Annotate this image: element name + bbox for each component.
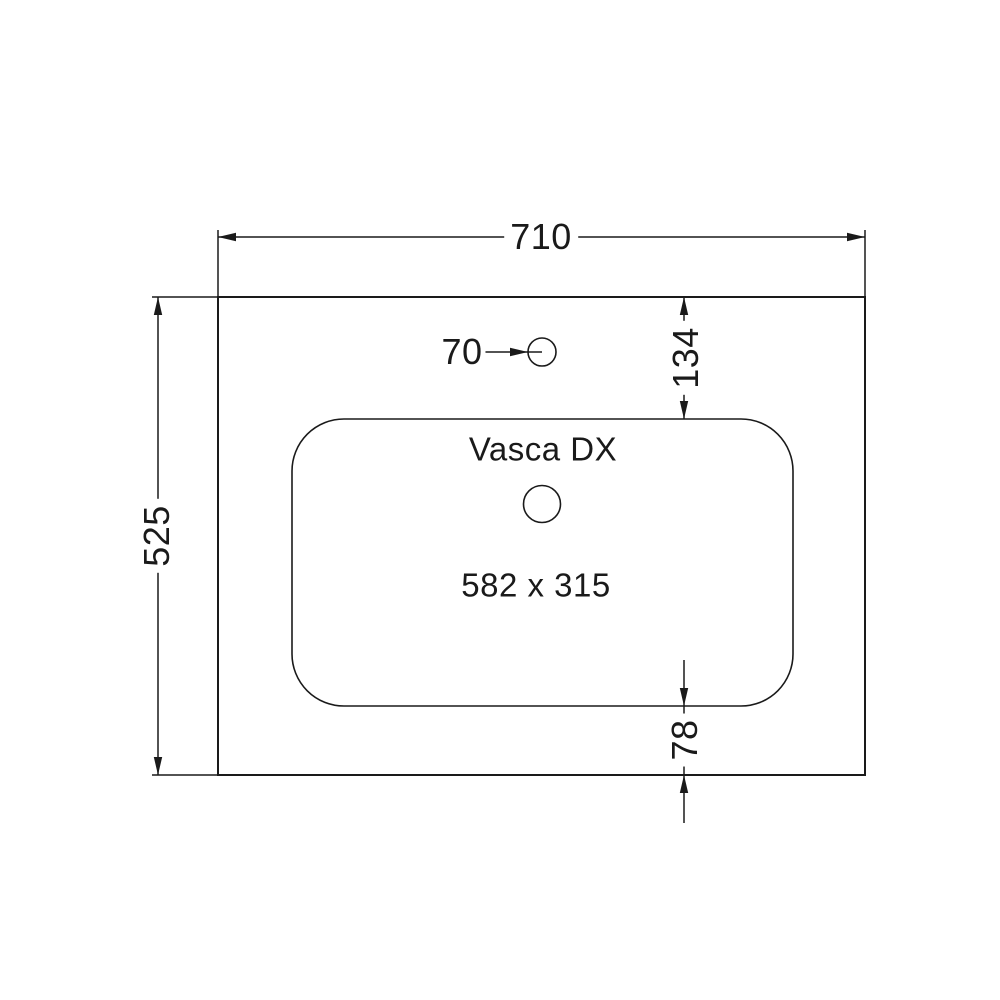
technical-drawing: 710 525 134 78 70 Vasca DX 582 x 315 <box>0 0 1000 1000</box>
basin-size-label: 582 x 315 <box>457 568 614 603</box>
dim-text-faucet-offset: 134 <box>667 321 705 395</box>
arrow-basin-offset-bottom <box>680 775 688 793</box>
arrow-depth-bottom <box>154 757 162 775</box>
countertop-outline <box>218 297 865 775</box>
dim-text-basin-offset: 78 <box>666 713 704 766</box>
drain-hole-circle <box>524 486 561 523</box>
arrow-depth-top <box>154 297 162 315</box>
arrow-faucet-leader <box>510 348 528 356</box>
dim-text-overall-depth: 525 <box>138 499 176 573</box>
basin-title-label: Vasca DX <box>465 432 621 467</box>
arrow-basin-offset-top <box>680 688 688 706</box>
arrow-width-left <box>218 233 236 241</box>
dim-text-overall-width: 710 <box>504 218 578 256</box>
arrow-faucet-offset-top <box>680 297 688 315</box>
arrow-faucet-offset-bottom <box>680 401 688 419</box>
dim-text-faucet-hole: 70 <box>438 333 485 371</box>
arrow-width-right <box>847 233 865 241</box>
